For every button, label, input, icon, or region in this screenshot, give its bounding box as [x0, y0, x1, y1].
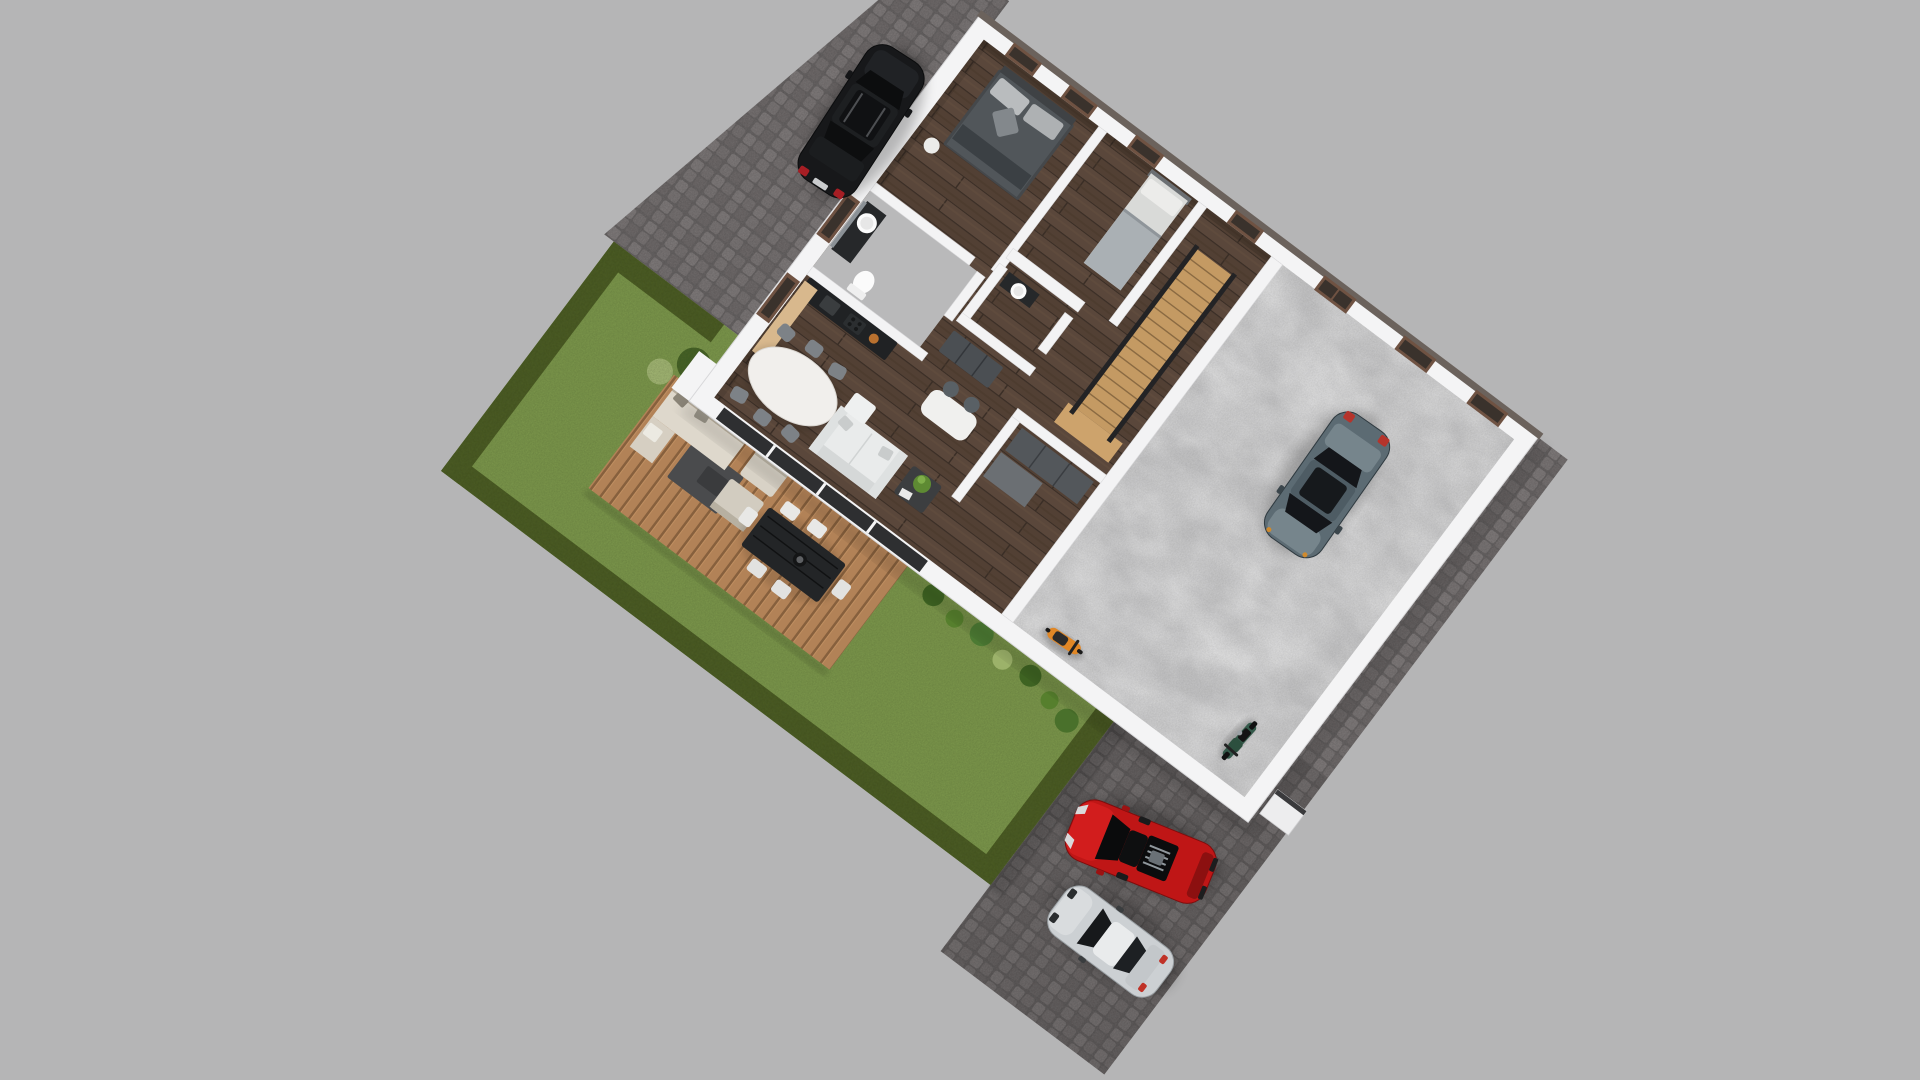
render-stage	[0, 0, 1920, 1080]
floorplan-render	[0, 0, 1920, 1080]
